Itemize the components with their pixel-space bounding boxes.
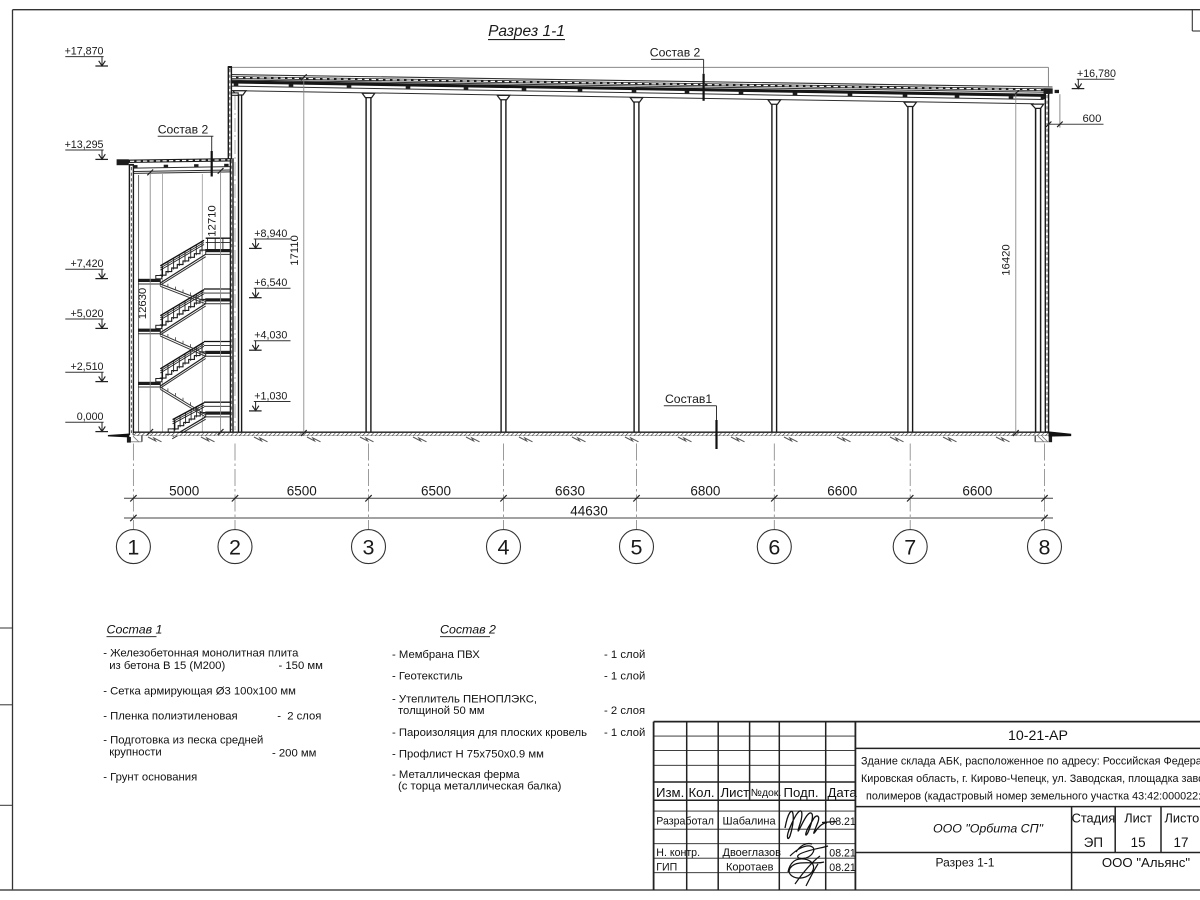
svg-text:5000: 5000 [169, 483, 199, 498]
svg-text:8: 8 [1039, 535, 1051, 559]
svg-text:- Утеплитель ПЕНОПЛЭКС,: - Утеплитель ПЕНОПЛЭКС, [392, 694, 537, 706]
svg-text:+16,780: +16,780 [1077, 68, 1116, 80]
svg-text:Шабалина: Шабалина [723, 816, 777, 828]
svg-text:- Пленка полиэтиленовая: - Пленка полиэтиленовая [103, 710, 237, 722]
svg-text:крупности: крупности [109, 747, 162, 759]
svg-text:- 1 слой: - 1 слой [604, 727, 645, 739]
svg-text:Дата: Дата [828, 785, 858, 800]
svg-text:ООО "Альянс": ООО "Альянс" [1102, 855, 1190, 870]
svg-text:6800: 6800 [690, 483, 720, 498]
svg-text:0,000: 0,000 [77, 411, 104, 423]
svg-text:Изм.: Изм. [656, 785, 684, 800]
svg-text:- Сетка армирующая Ø3 100х100: - Сетка армирующая Ø3 100х100 мм [103, 686, 296, 698]
svg-text:6630: 6630 [555, 483, 585, 498]
svg-text:17: 17 [1174, 835, 1189, 850]
svg-text:+4,030: +4,030 [254, 330, 287, 342]
svg-text:- Геотекстиль: - Геотекстиль [392, 670, 463, 682]
svg-text:+2,510: +2,510 [71, 361, 104, 373]
svg-text:- 1 слой: - 1 слой [604, 649, 645, 661]
svg-text:№док.: №док. [751, 788, 781, 799]
svg-text:- Профлист Н 75х750х0.9 мм: - Профлист Н 75х750х0.9 мм [392, 748, 544, 760]
svg-text:- Мембрана ПВХ: - Мембрана ПВХ [392, 649, 480, 661]
svg-text:+13,295: +13,295 [65, 139, 104, 151]
svg-text:08.21: 08.21 [829, 862, 856, 874]
svg-text:4: 4 [498, 535, 510, 559]
svg-text:16420: 16420 [1000, 244, 1012, 275]
svg-text:7: 7 [904, 535, 916, 559]
svg-text:Разрез 1-1: Разрез 1-1 [936, 856, 995, 870]
svg-text:- Пароизоляция для плоских кро: - Пароизоляция для плоских кровель [392, 727, 587, 739]
svg-text:Состав 1: Состав 1 [107, 623, 163, 637]
svg-text:600: 600 [1083, 113, 1102, 125]
svg-text:2: 2 [229, 535, 241, 559]
svg-text:Состав 2: Состав 2 [650, 46, 701, 60]
svg-text:ООО "Орбита СП": ООО "Орбита СП" [933, 821, 1044, 835]
svg-text:17110: 17110 [289, 235, 301, 266]
svg-text:Кол.: Кол. [689, 785, 715, 800]
svg-text:Н. контр.: Н. контр. [656, 847, 700, 859]
svg-text:5: 5 [631, 535, 643, 559]
svg-text:из бетона В 15 (М200): из бетона В 15 (М200) [109, 660, 225, 672]
svg-text:+1,030: +1,030 [254, 390, 287, 402]
svg-text:ГИП: ГИП [656, 861, 677, 873]
svg-text:- Подготовка из песка средней: - Подготовка из песка средней [103, 734, 263, 746]
svg-text:6: 6 [768, 535, 780, 559]
svg-text:полимеров (кадастровый номер з: полимеров (кадастровый номер земельного … [866, 790, 1200, 802]
svg-text:44630: 44630 [570, 504, 608, 519]
svg-text:Состав 2: Состав 2 [158, 123, 209, 137]
svg-text:- Грунт основания: - Грунт основания [103, 772, 197, 784]
svg-text:Двоеглазов: Двоеглазов [723, 847, 782, 859]
svg-text:- 150 мм: - 150 мм [279, 660, 323, 672]
svg-text:6600: 6600 [827, 483, 857, 498]
svg-text:08.21: 08.21 [829, 848, 856, 860]
svg-text:Разработал: Разработал [656, 816, 714, 828]
svg-text:- 200 мм: - 200 мм [272, 748, 316, 760]
svg-text:6600: 6600 [962, 483, 992, 498]
svg-text:+5,020: +5,020 [71, 308, 104, 320]
svg-text:Коротаев: Коротаев [726, 861, 774, 873]
svg-text:Здание склада АБК, расположенн: Здание склада АБК, расположенное по адре… [861, 756, 1200, 768]
svg-text:- Металлическая ферма: - Металлическая ферма [392, 769, 520, 781]
svg-text:6500: 6500 [421, 483, 451, 498]
svg-text:12710: 12710 [206, 205, 218, 236]
svg-text:15: 15 [1131, 835, 1146, 850]
svg-text:10-21-АР: 10-21-АР [1008, 728, 1068, 744]
svg-text:- 2 слоя: - 2 слоя [604, 705, 645, 717]
svg-text:Состав1: Состав1 [665, 392, 712, 406]
svg-text:Лист: Лист [1124, 810, 1152, 825]
svg-text:6500: 6500 [287, 483, 317, 498]
svg-text:3: 3 [363, 535, 375, 559]
svg-text:Кировская область, г. Кирово-Ч: Кировская область, г. Кирово-Чепецк, ул.… [861, 773, 1200, 785]
svg-text:Листов: Листов [1165, 810, 1200, 825]
svg-text:+6,540: +6,540 [254, 277, 287, 289]
svg-text:Подп.: Подп. [784, 785, 819, 800]
svg-text:1: 1 [127, 535, 139, 559]
svg-text:+8,940: +8,940 [254, 228, 287, 240]
svg-text:- 1 слой: - 1 слой [604, 670, 645, 682]
svg-text:+17,870: +17,870 [65, 45, 104, 57]
svg-text:толщиной 50 мм: толщиной 50 мм [398, 705, 485, 717]
svg-text:12630: 12630 [137, 288, 149, 319]
svg-text:+7,420: +7,420 [71, 258, 104, 270]
svg-text:- 2 слоя: - 2 слоя [277, 710, 321, 722]
svg-text:ЭП: ЭП [1084, 835, 1103, 850]
svg-text:(с торца металлическая балка): (с торца металлическая балка) [398, 780, 562, 792]
svg-text:Разрез 1-1: Разрез 1-1 [488, 23, 565, 40]
svg-text:Лист: Лист [721, 785, 750, 800]
svg-text:Состав 2: Состав 2 [440, 623, 496, 637]
svg-text:- Железобетонная монолитная п: - Железобетонная монолитная плита [103, 648, 299, 660]
svg-text:Стадия: Стадия [1072, 810, 1116, 825]
